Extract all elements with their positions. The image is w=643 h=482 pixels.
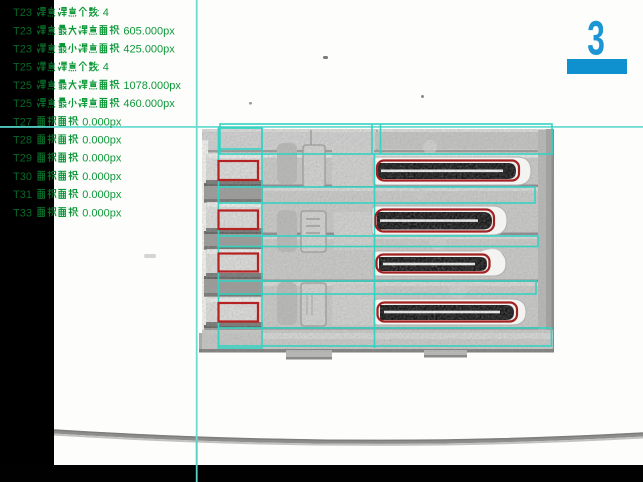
svg-text:: 425.000px: : 425.000px [117, 44, 175, 56]
svg-text:: 0.000px: : 0.000px [76, 207, 122, 219]
svg-text:: 0.000px: : 0.000px [76, 135, 122, 147]
svg-text:: 0.000px: : 0.000px [76, 189, 122, 201]
svg-text:3: 3 [587, 11, 605, 65]
svg-text:: 605.000px: : 605.000px [117, 25, 175, 37]
svg-text:: 4: : 4 [97, 62, 109, 74]
svg-text:: 0.000px: : 0.000px [76, 116, 122, 128]
svg-text:: 0.000px: : 0.000px [76, 153, 122, 165]
svg-text:: 0.000px: : 0.000px [76, 171, 122, 183]
svg-text:: 4: : 4 [97, 7, 109, 19]
svg-text:: 1078.000px: : 1078.000px [117, 80, 181, 92]
svg-text:: 460.000px: : 460.000px [117, 98, 175, 110]
